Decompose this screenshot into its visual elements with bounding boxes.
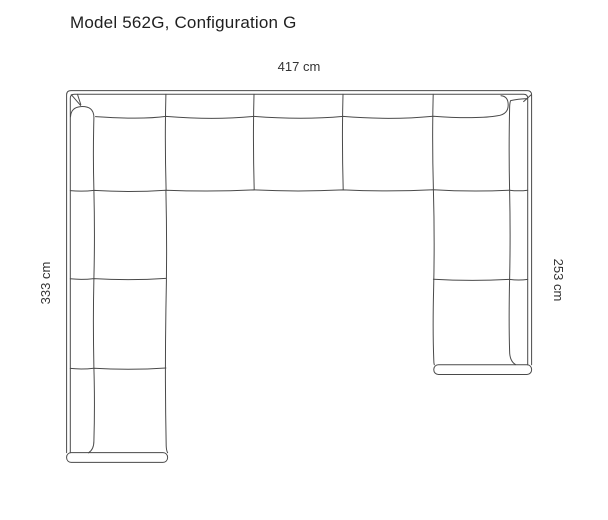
left-arm-seam-2 — [70, 368, 166, 369]
top-seat-seam-3 — [342, 94, 343, 189]
front-panels — [67, 365, 532, 463]
arm-inner-edges — [165, 190, 434, 453]
right-arm-seam-1 — [433, 279, 527, 280]
sofa-top-view-diagram: 417 cm 333 cm 253 cm — [0, 0, 608, 520]
left-arm-seam-1 — [70, 278, 166, 279]
top-seat-seam-1 — [165, 94, 166, 189]
cushion-seams — [70, 94, 527, 369]
right-arm-inner-edge — [433, 190, 434, 365]
frame-inner-line — [70, 94, 527, 452]
top-seat-seam-4 — [433, 94, 434, 189]
sofa-outline — [67, 91, 532, 463]
backrest-cushions — [71, 94, 532, 452]
page: Model 562G, Configuration G — [0, 0, 608, 520]
top-backrest-edge — [96, 96, 509, 119]
right-backrest-edge — [509, 99, 527, 365]
top-seat-seam-2 — [253, 94, 254, 189]
dimension-labels: 417 cm 333 cm 253 cm — [38, 59, 566, 304]
frame-outer-line — [67, 91, 532, 453]
frame-outline — [67, 91, 532, 453]
right-arm-front-panel — [434, 365, 532, 375]
dimension-top-width: 417 cm — [278, 59, 321, 74]
left-arm-front-panel — [67, 453, 168, 463]
dimension-right-depth: 253 cm — [551, 259, 566, 302]
left-arm-inner-edge — [165, 190, 167, 453]
main-horizontal-seam — [70, 190, 527, 192]
dimension-left-depth: 333 cm — [38, 262, 53, 305]
